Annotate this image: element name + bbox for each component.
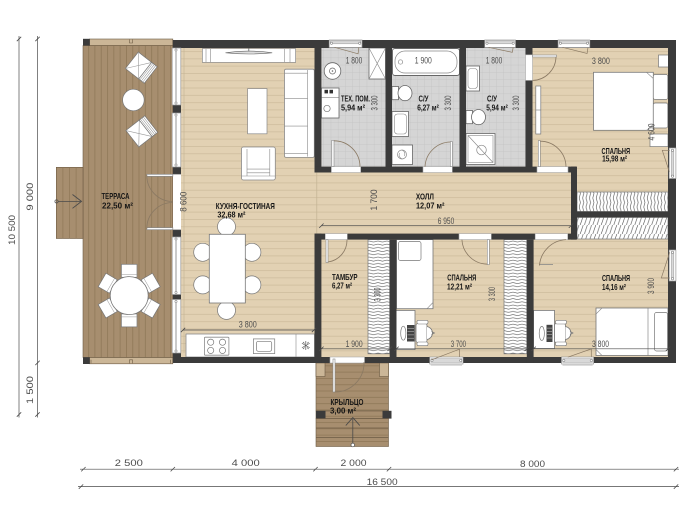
svg-text:14,16 м²: 14,16 м² [602, 282, 626, 292]
svg-text:3 700: 3 700 [451, 339, 466, 349]
svg-text:9 000: 9 000 [25, 183, 36, 211]
svg-text:10 500: 10 500 [7, 215, 18, 245]
svg-text:12,07 м²: 12,07 м² [416, 200, 445, 210]
svg-text:16 500: 16 500 [367, 477, 398, 488]
svg-text:3,00 м²: 3,00 м² [330, 405, 356, 415]
svg-text:1 800: 1 800 [486, 55, 503, 65]
svg-text:2 500: 2 500 [115, 458, 143, 469]
svg-text:22,50 м²: 22,50 м² [102, 201, 133, 211]
svg-text:3 900: 3 900 [646, 278, 656, 294]
svg-text:1 800: 1 800 [346, 55, 363, 65]
svg-text:1 700: 1 700 [369, 189, 379, 210]
svg-text:5,94 м²: 5,94 м² [341, 103, 365, 113]
svg-text:1 900: 1 900 [346, 339, 363, 349]
svg-text:6 950: 6 950 [438, 216, 455, 226]
svg-text:ТЕРРАСА: ТЕРРАСА [102, 191, 130, 201]
svg-text:3 300: 3 300 [370, 95, 380, 110]
svg-text:3 800: 3 800 [239, 319, 257, 329]
svg-text:3 300: 3 300 [372, 287, 382, 301]
svg-text:3 300: 3 300 [443, 95, 453, 110]
svg-text:8 000: 8 000 [520, 459, 545, 470]
svg-text:6,27 м²: 6,27 м² [332, 281, 352, 291]
svg-text:32,68 м²: 32,68 м² [217, 210, 245, 220]
svg-text:1 900: 1 900 [415, 55, 432, 65]
svg-text:3 300: 3 300 [511, 95, 521, 110]
svg-text:3 800: 3 800 [592, 339, 609, 349]
svg-text:2 000: 2 000 [341, 458, 367, 469]
svg-text:4 600: 4 600 [647, 123, 657, 140]
svg-text:5,94 м²: 5,94 м² [486, 103, 508, 113]
svg-text:6,27 м²: 6,27 м² [417, 103, 439, 113]
svg-text:4 000: 4 000 [232, 458, 260, 469]
svg-text:8 600: 8 600 [179, 192, 189, 212]
svg-text:3 800: 3 800 [592, 56, 610, 66]
svg-text:12,21 м²: 12,21 м² [447, 281, 472, 291]
svg-text:1 500: 1 500 [25, 376, 36, 404]
svg-text:3 300: 3 300 [487, 287, 497, 301]
svg-text:15,98 м²: 15,98 м² [602, 154, 627, 164]
